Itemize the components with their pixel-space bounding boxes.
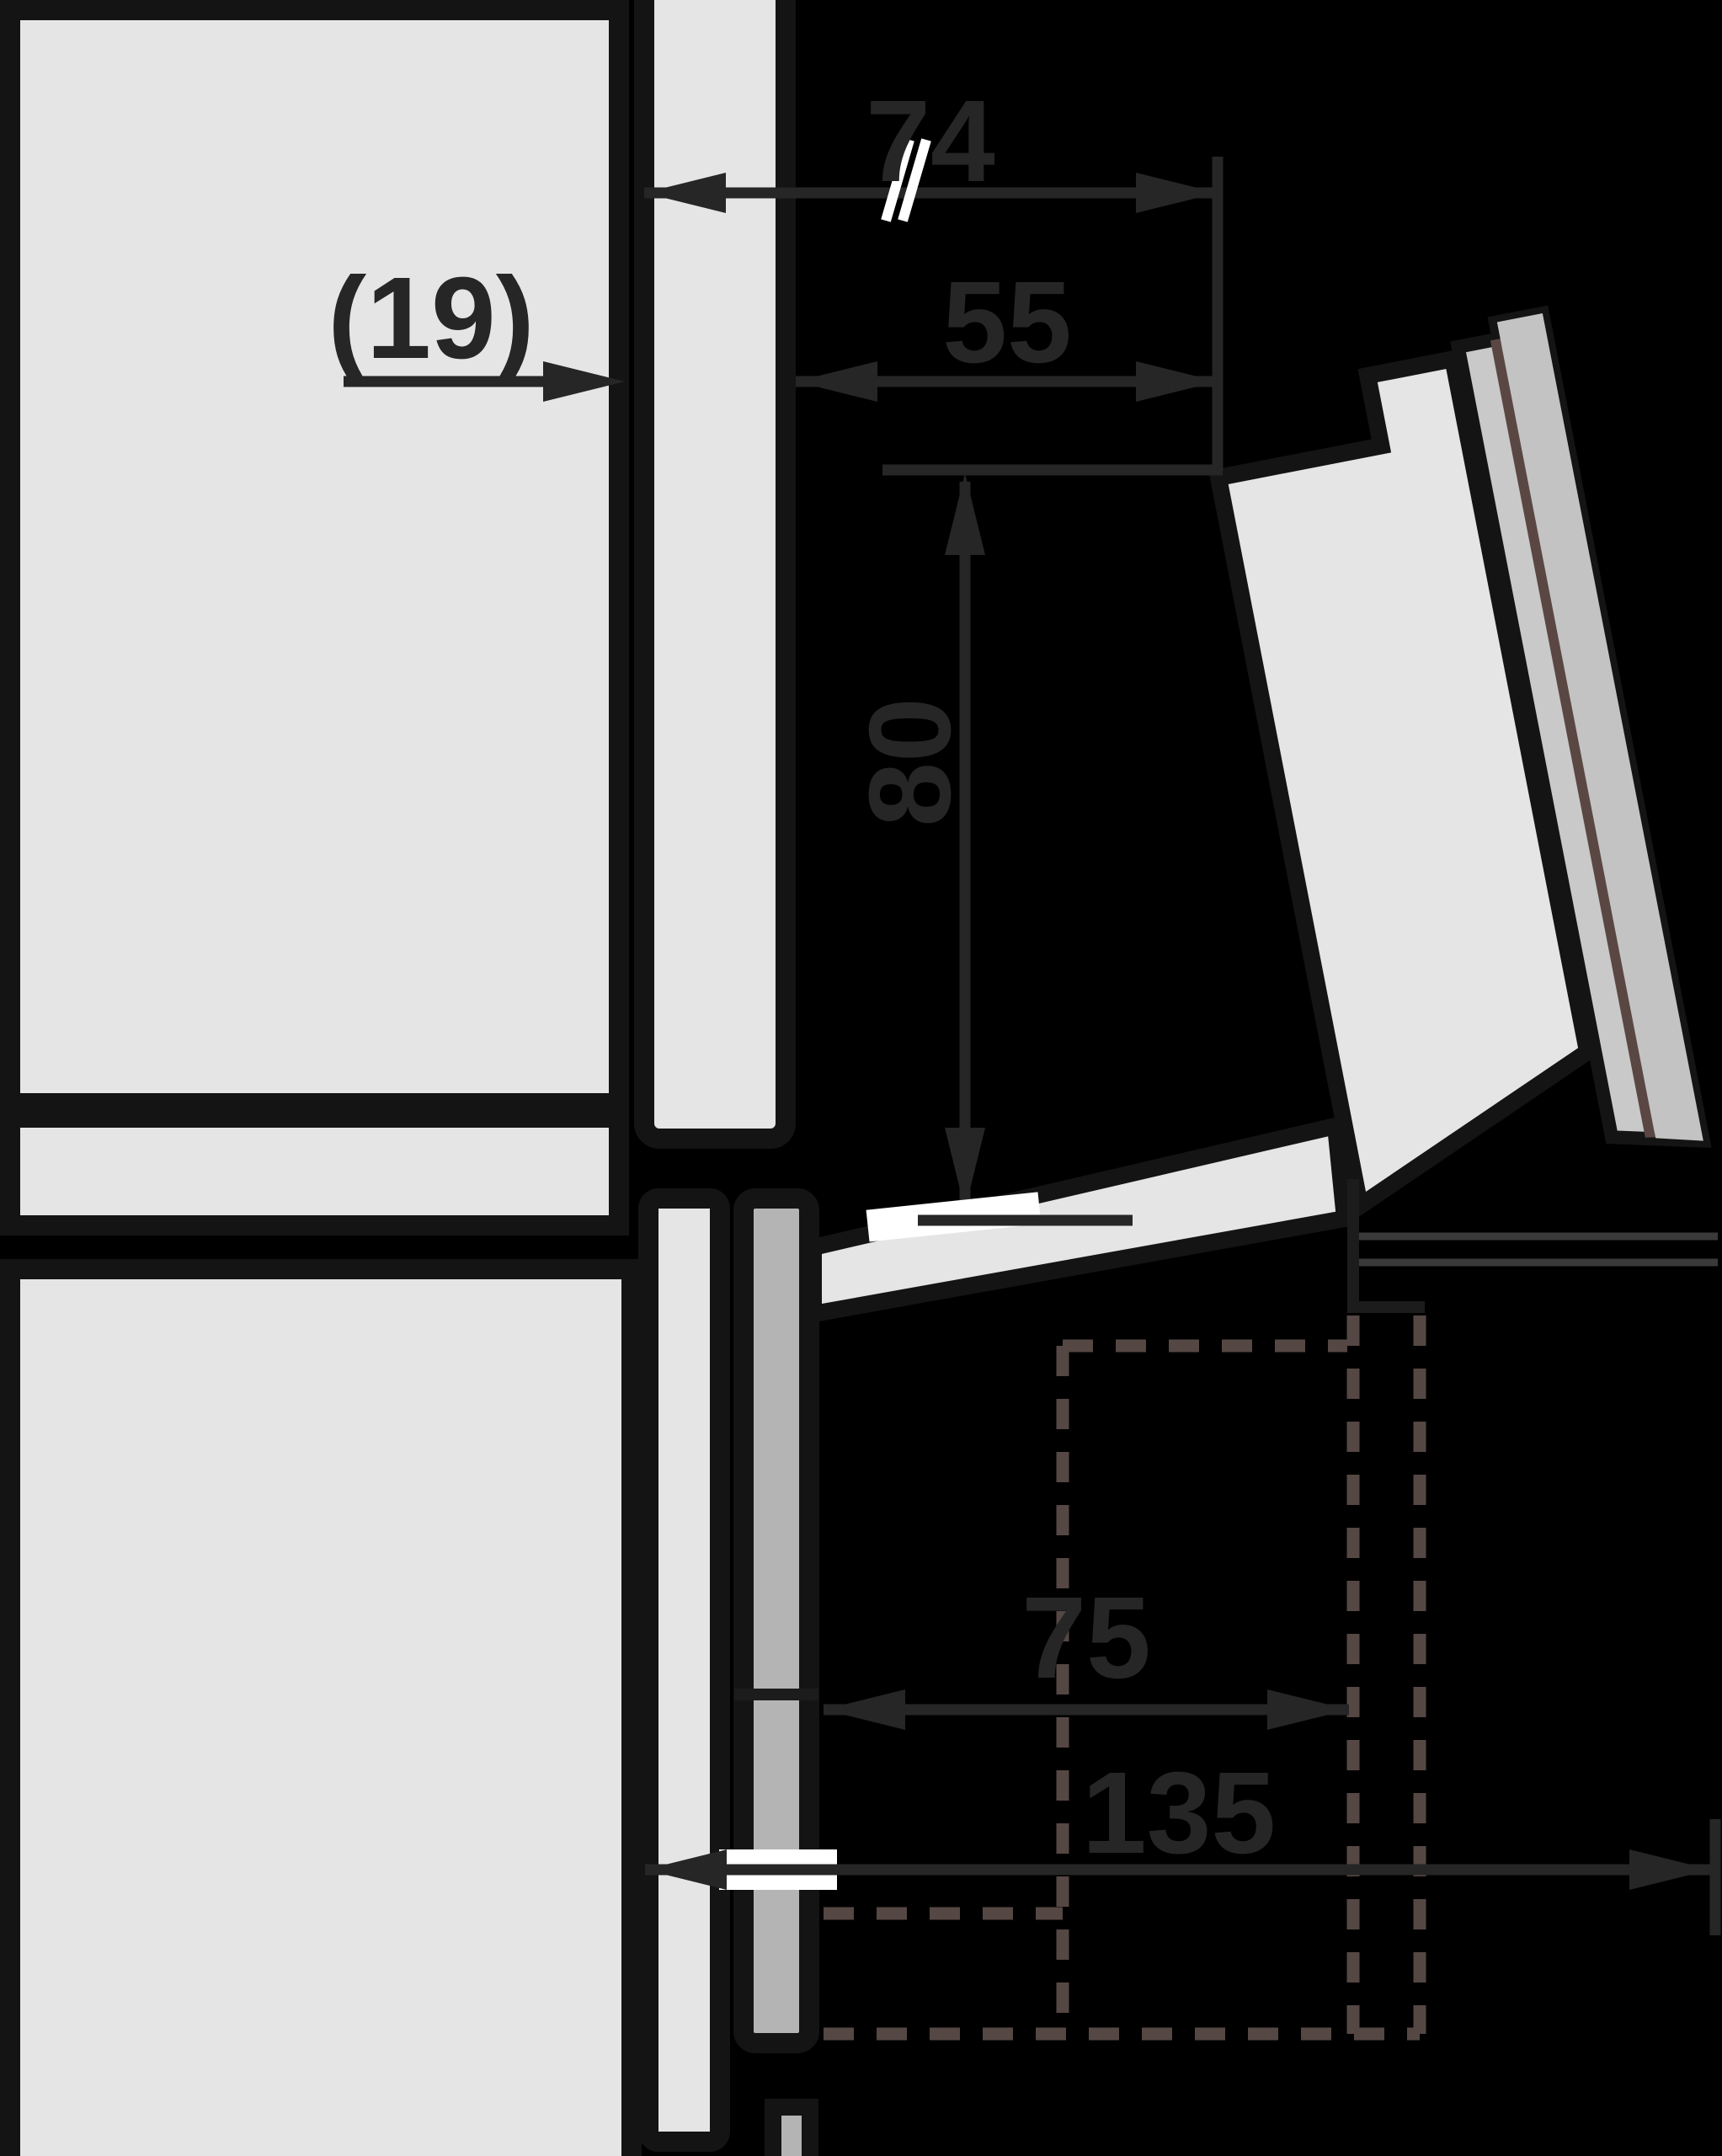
dimension-80: 80 — [845, 473, 1133, 1242]
installation-diagram: 74 (19) 55 80 75 135 — [0, 0, 1722, 2156]
dimension-74-label: 74 — [866, 77, 995, 206]
dimension-75-arrow-left — [824, 1689, 905, 1730]
cabinet-shelf-panel — [10, 1118, 619, 1225]
cabinet-lower-side-panel — [10, 1269, 632, 2156]
diagram-canvas: 74 (19) 55 80 75 135 — [0, 0, 1722, 2156]
dimension-75: 75 — [824, 1573, 1349, 1730]
dimension-80-arrow-up — [945, 473, 985, 555]
dimension-80-label: 80 — [845, 697, 975, 827]
dimension-55-label: 55 — [942, 258, 1072, 387]
lower-gray-strip — [744, 1198, 809, 2043]
dimension-19-label: (19) — [328, 253, 534, 383]
dimension-74-arrow-right — [1136, 173, 1218, 213]
dimension-55: 55 — [796, 258, 1218, 402]
dimension-55-arrow-right — [1136, 361, 1218, 402]
dimension-75-label: 75 — [1021, 1573, 1151, 1703]
dimension-135-label: 135 — [1082, 1748, 1276, 1878]
lower-front-strip — [648, 1198, 720, 2142]
dimension-80-arrow-down — [945, 1128, 985, 1209]
strip-foot-block — [773, 2107, 810, 2156]
dimension-75-arrow-right — [1267, 1689, 1349, 1730]
dimension-55-arrow-left — [796, 361, 877, 402]
dimension-135-arrow-right — [1629, 1849, 1711, 1890]
upper-front-strip — [644, 0, 786, 1139]
tilted-door-assembly — [1199, 313, 1703, 1208]
cabinet-upper-side-panel — [10, 10, 619, 1103]
